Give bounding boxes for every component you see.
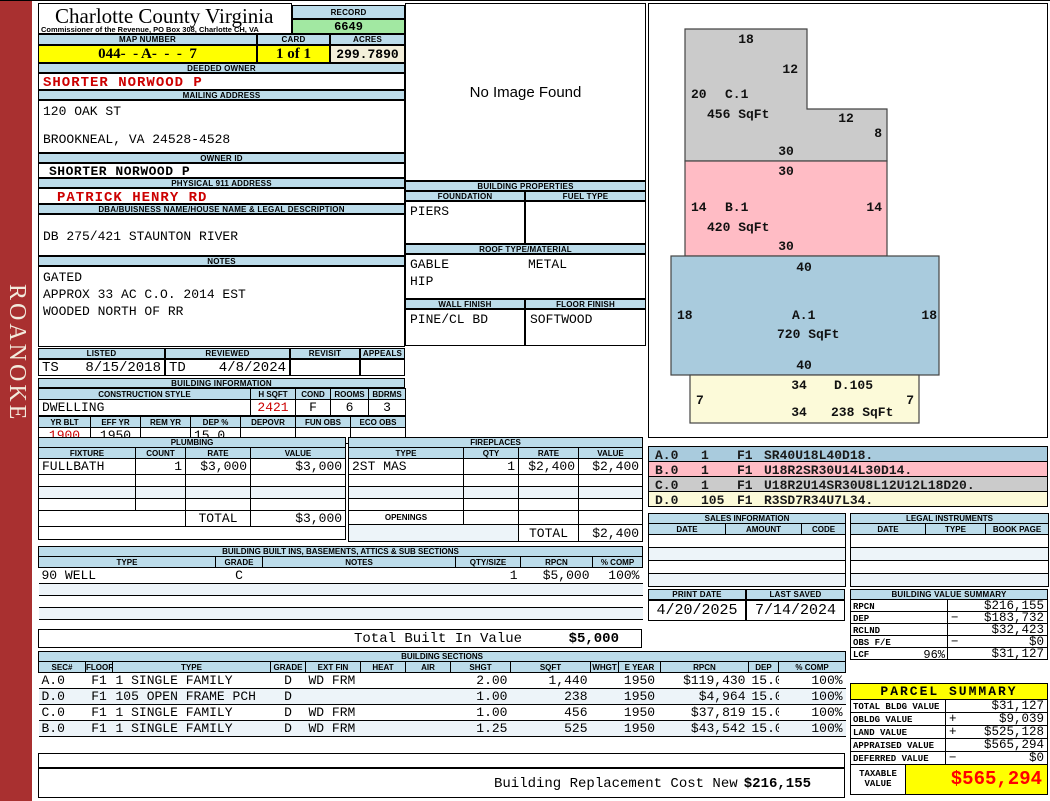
- sketch-section-c1: [685, 29, 887, 161]
- col-pct-comp: % COMP: [779, 662, 846, 673]
- built-ins-total-row: Total Built In Value $5,000: [38, 629, 642, 648]
- cell: $37,819: [661, 705, 749, 721]
- cell: D: [271, 721, 306, 737]
- acres-value: 299.7890: [330, 45, 405, 63]
- reviewed-value: TD 4/8/2024: [165, 359, 290, 376]
- fireplaces-openings-label: OPENINGS: [349, 511, 464, 525]
- cell: 1.00: [451, 705, 511, 721]
- dim-label: 12: [838, 111, 854, 126]
- cell: 100%: [779, 689, 846, 705]
- col-eff-yr: EFF YR: [91, 417, 141, 428]
- cell: 1.25: [451, 721, 511, 737]
- cell: [406, 673, 451, 689]
- vector-floor: F1: [737, 493, 753, 508]
- listed-value: TS 8/15/2018: [38, 359, 165, 376]
- map-number-value: 044- - A- - - 7: [38, 45, 257, 63]
- dim-label: 18: [677, 308, 693, 323]
- legal-description-box: DB 275/421 STAUNTON RIVER: [38, 214, 405, 256]
- county-header-box: Charlotte County Virginia Commissioner o…: [38, 3, 292, 34]
- cell: [591, 721, 619, 737]
- bvs-row-rclnd: RCLND $32,423: [850, 624, 1048, 636]
- col-sec: SEC#: [39, 662, 86, 673]
- dim-label: 40: [796, 260, 812, 275]
- district-band: ROANOKE: [0, 1, 32, 801]
- owner-id-box: SHORTER NORWOOD P: [38, 163, 405, 178]
- deeded-owner-box: SHORTER NORWOOD P: [38, 73, 405, 90]
- col-rem-yr: REM YR: [141, 417, 191, 428]
- sales-information-table: SALES INFORMATION DATE AMOUNT CODE: [648, 513, 846, 587]
- col-yr-blt: YR BLT: [39, 417, 91, 428]
- dim-label: 30: [778, 164, 794, 179]
- cell: 100%: [779, 721, 846, 737]
- built-in-type: 90 WELL: [39, 568, 216, 584]
- dim-label: 30: [778, 239, 794, 254]
- property-record-card: ROANOKE Charlotte County Virginia Commis…: [0, 0, 1050, 800]
- cell: WD FRM: [306, 673, 361, 689]
- roof-material: METAL: [528, 257, 567, 272]
- section-sqft: 720 SqFt: [777, 327, 839, 342]
- rooms-value: 6: [331, 400, 369, 416]
- legal-instruments-title: LEGAL INSTRUMENTS: [851, 514, 1049, 524]
- foundation-value-box: PIERS: [405, 201, 525, 244]
- record-value: 6649: [292, 19, 405, 34]
- no-image-text: No Image Found: [406, 84, 645, 101]
- foundation-label: FOUNDATION: [405, 191, 525, 201]
- section-name: D.105: [834, 378, 873, 393]
- cell: 15.0: [749, 721, 779, 737]
- vector-code-row-a: A.0 1 F1 SR40U18L40D18.: [648, 446, 1048, 462]
- building-sections-table: BUILDING SECTIONS SEC# FLOOR TYPE GRADE …: [38, 651, 846, 737]
- plumbing-title: PLUMBING: [39, 438, 346, 448]
- print-date-value: 4/20/2025: [648, 600, 746, 621]
- built-ins-total-label: Total Built In Value: [354, 631, 522, 647]
- plumbing-fixture: FULLBATH: [39, 459, 136, 475]
- col-sqft: SQFT: [511, 662, 591, 673]
- notes-box: GATED APPROX 33 AC C.O. 2014 EST WOODED …: [38, 266, 405, 347]
- cell: [406, 705, 451, 721]
- roof-label: ROOF TYPE/MATERIAL: [405, 244, 646, 254]
- cell: [361, 721, 406, 737]
- note-line: GATED: [43, 270, 82, 285]
- cell: 1 SINGLE FAMILY: [113, 705, 271, 721]
- cell: 15.0: [749, 705, 779, 721]
- vector-code: R3SD7R34U7L34.: [764, 493, 873, 508]
- dim-label: 14: [691, 200, 707, 215]
- sales-information-title: SALES INFORMATION: [649, 514, 846, 524]
- col-value: VALUE: [251, 448, 346, 459]
- dim-label: 40: [796, 358, 812, 373]
- cell: 1950: [619, 689, 661, 705]
- bdrms-value: 3: [369, 400, 406, 416]
- section-row-c0: C.0F11 SINGLE FAMILYDWD FRM1.004561950$3…: [39, 705, 846, 721]
- building-information-table: CONSTRUCTION STYLE H SQFT COND ROOMS BDR…: [38, 388, 406, 444]
- cell: WD FRM: [306, 705, 361, 721]
- bvs-lcf-pct: 96%: [923, 648, 945, 659]
- building-sketch: 18 12 20 C.1 456 SqFt 12 8 30 30 14 B.1 …: [648, 3, 1048, 438]
- district-name: ROANOKE: [3, 284, 30, 422]
- fireplaces-total-label: TOTAL: [519, 525, 579, 542]
- plumbing-table: PLUMBING FIXTURE COUNT RATE VALUE FULLBA…: [38, 437, 346, 540]
- cell: D: [271, 673, 306, 689]
- card-label: CARD: [257, 34, 330, 45]
- col-ext-fin: EXT FIN: [306, 662, 361, 673]
- ps-value: $565,294: [984, 738, 1044, 752]
- revisit-label: REVISIT: [290, 348, 360, 359]
- col-amount: AMOUNT: [726, 524, 802, 535]
- col-eyear: E YEAR: [619, 662, 661, 673]
- col-pct-comp: % COMP: [593, 557, 643, 568]
- col-h-sqft: H SQFT: [251, 389, 296, 400]
- section-row-a0: A.0F11 SINGLE FAMILYDWD FRM2.001,4401950…: [39, 673, 846, 689]
- owner-id-label: OWNER ID: [38, 153, 405, 163]
- wall-finish-box: PINE/CL BD: [405, 309, 525, 346]
- col-rpcn: RPCN: [661, 662, 749, 673]
- photo-panel: No Image Found: [405, 3, 646, 181]
- reviewed-by: TD: [169, 360, 186, 376]
- built-in-qty: 1: [456, 568, 521, 584]
- card-value: 1 of 1: [257, 45, 330, 63]
- col-heat: HEAT: [361, 662, 406, 673]
- taxable-label-text: TAXABLE VALUE: [859, 769, 897, 789]
- built-ins-table: BUILDING BUILT INS, BASEMENTS, ATTICS & …: [38, 546, 643, 620]
- ps-op: +: [949, 712, 957, 726]
- bvs-label: OBS F/E: [851, 636, 948, 647]
- plumbing-count: 1: [136, 459, 186, 475]
- fireplace-type: 2ST MAS: [349, 459, 464, 475]
- cell: 1950: [619, 721, 661, 737]
- fuel-type-value-box: [525, 201, 646, 244]
- physical-address-box: PATRICK HENRY RD: [38, 188, 405, 204]
- col-rooms: ROOMS: [331, 389, 369, 400]
- cell: $4,964: [661, 689, 749, 705]
- cell: 100%: [779, 705, 846, 721]
- replacement-cost-value: $216,155: [744, 776, 811, 792]
- parcel-summary: PARCEL SUMMARY TOTAL BLDG VALUE $31,127 …: [850, 683, 1048, 795]
- col-grade: GRADE: [271, 662, 306, 673]
- cell: 238: [511, 689, 591, 705]
- ps-row-deferred: DEFERRED VALUE −$0: [851, 752, 1047, 765]
- fireplace-value: $2,400: [579, 459, 643, 475]
- floor-finish-label: FLOOR FINISH: [525, 299, 646, 309]
- ps-label: DEFERRED VALUE: [851, 752, 946, 764]
- notes-label: NOTES: [38, 256, 405, 266]
- section-row-b0: B.0F11 SINGLE FAMILYDWD FRM1.255251950$4…: [39, 721, 846, 737]
- col-type: TYPE: [349, 448, 464, 459]
- col-floor: FLOOR: [86, 662, 113, 673]
- physical-address-label: PHYSICAL 911 ADDRESS: [38, 178, 405, 188]
- dba-label: DBA/BUISNESS NAME/HOUSE NAME & LEGAL DES…: [38, 204, 405, 214]
- fireplace-qty: 1: [464, 459, 519, 475]
- dim-label: 7: [906, 393, 914, 408]
- vector-sec: D.0: [655, 493, 678, 508]
- col-air: AIR: [406, 662, 451, 673]
- cond-value: F: [296, 400, 331, 416]
- construction-style-value: DWELLING: [39, 400, 251, 416]
- fireplace-rate: $2,400: [519, 459, 579, 475]
- deeded-owner-value: SHORTER NORWOOD P: [43, 75, 203, 91]
- cell: 1 SINGLE FAMILY: [113, 673, 271, 689]
- cell: F1: [86, 673, 113, 689]
- dim-label: 14: [866, 200, 882, 215]
- col-count: COUNT: [136, 448, 186, 459]
- reviewed-date: 4/8/2024: [219, 360, 286, 376]
- col-type: TYPE: [39, 557, 216, 568]
- map-number-label: MAP NUMBER: [38, 34, 257, 45]
- section-sqft: 238 SqFt: [831, 405, 893, 420]
- col-type: TYPE: [113, 662, 271, 673]
- plumbing-total-label: TOTAL: [186, 511, 251, 527]
- built-in-pct-comp: 100%: [593, 568, 643, 584]
- bvs-op: −: [951, 611, 959, 625]
- note-line: APPROX 33 AC C.O. 2014 EST: [43, 287, 246, 302]
- dim-label: 30: [778, 144, 794, 159]
- ps-label: OBLDG VALUE: [851, 713, 946, 725]
- col-code: CODE: [802, 524, 846, 535]
- wall-finish-value: PINE/CL BD: [410, 312, 488, 327]
- cell: 100%: [779, 673, 846, 689]
- col-shgt: SHGT: [451, 662, 511, 673]
- fuel-type-label: FUEL TYPE: [525, 191, 646, 201]
- taxable-value: $565,294: [906, 765, 1047, 794]
- col-notes: NOTES: [263, 557, 456, 568]
- ps-value: $525,128: [984, 725, 1044, 739]
- cell: [361, 689, 406, 705]
- last-saved-value: 7/14/2024: [746, 600, 845, 621]
- col-type: TYPE: [926, 524, 986, 535]
- cell: WD FRM: [306, 721, 361, 737]
- cell: [306, 689, 361, 705]
- parcel-summary-title: PARCEL SUMMARY: [851, 684, 1047, 700]
- cell: 456: [511, 705, 591, 721]
- cell: [361, 673, 406, 689]
- appeals-value: [360, 359, 405, 376]
- owner-id-value: SHORTER NORWOOD P: [49, 164, 190, 179]
- section-name: A.1: [792, 308, 816, 323]
- col-fixture: FIXTURE: [39, 448, 136, 459]
- ps-value: $9,039: [999, 712, 1044, 726]
- mailing-address-label: MAILING ADDRESS: [38, 90, 405, 100]
- cell: 15.0: [749, 673, 779, 689]
- fireplaces-total-value: $2,400: [579, 525, 643, 542]
- floor-finish-value: SOFTWOOD: [530, 312, 592, 327]
- col-grade: GRADE: [216, 557, 263, 568]
- dim-label: 8: [874, 126, 882, 141]
- cell: [406, 689, 451, 705]
- dim-label: 34: [791, 378, 807, 393]
- cell: [361, 705, 406, 721]
- building-value-summary: RPCN $216,155 DEP −$183,732 RCLND $32,42…: [850, 600, 1048, 660]
- dim-label: 18: [921, 308, 937, 323]
- ps-label: TOTAL BLDG VALUE: [851, 700, 946, 712]
- bvs-op: −: [951, 635, 959, 649]
- col-date: DATE: [851, 524, 926, 535]
- commissioner-line: Commissioner of the Revenue, PO Box 308,…: [41, 25, 259, 34]
- record-label: RECORD: [292, 5, 405, 19]
- bvs-label: RCLND: [851, 624, 948, 635]
- mailing-address-line2: BROOKNEAL, VA 24528-4528: [43, 132, 230, 147]
- legal-instruments-table: LEGAL INSTRUMENTS DATE TYPE BOOK PAGE: [850, 513, 1049, 587]
- dim-label: 18: [738, 32, 754, 47]
- cell: 105 OPEN FRAME PCH: [113, 689, 271, 705]
- last-saved-label: LAST SAVED: [746, 589, 845, 600]
- reviewed-label: REVIEWED: [165, 348, 290, 359]
- col-value: VALUE: [579, 448, 643, 459]
- built-in-grade: C: [216, 568, 263, 584]
- cell: 1 SINGLE FAMILY: [113, 721, 271, 737]
- ps-value: $31,127: [991, 699, 1044, 713]
- cell: 15.0: [749, 689, 779, 705]
- cell: [406, 721, 451, 737]
- cell: [591, 705, 619, 721]
- deeded-owner-label: DEEDED OWNER: [38, 63, 405, 73]
- bvs-lcf-label: LCF: [853, 650, 869, 659]
- fireplaces-title: FIREPLACES: [349, 438, 643, 448]
- section-sqft: 420 SqFt: [707, 220, 769, 235]
- col-cond: COND: [296, 389, 331, 400]
- bvs-row-lcf: LCF 96% $31,127: [850, 648, 1048, 660]
- col-bdrms: BDRMS: [369, 389, 406, 400]
- col-whgt: WHGT: [591, 662, 619, 673]
- ps-value: $0: [1029, 751, 1044, 765]
- built-ins-title: BUILDING BUILT INS, BASEMENTS, ATTICS & …: [39, 547, 643, 557]
- col-construction-style: CONSTRUCTION STYLE: [39, 389, 251, 400]
- built-in-rpcn: $5,000: [521, 568, 593, 584]
- cell: 525: [511, 721, 591, 737]
- col-dep-pct: DEP %: [191, 417, 241, 428]
- ps-op: +: [949, 725, 957, 739]
- mailing-address-box: 120 OAK ST BROOKNEAL, VA 24528-4528: [38, 100, 405, 153]
- col-rate: RATE: [186, 448, 251, 459]
- cell: $43,542: [661, 721, 749, 737]
- building-properties-title: BUILDING PROPERTIES: [405, 181, 646, 191]
- floor-finish-box: SOFTWOOD: [525, 309, 646, 346]
- col-qty-size: QTY/SIZE: [456, 557, 521, 568]
- cell: 1,440: [511, 673, 591, 689]
- print-date-label: PRINT DATE: [648, 589, 746, 600]
- appeals-label: APPEALS: [360, 348, 405, 359]
- cell: F1: [86, 721, 113, 737]
- listed-by: TS: [42, 360, 59, 376]
- cell: C.0: [39, 705, 86, 721]
- built-in-notes: [263, 568, 456, 584]
- bvs-label: LCF 96%: [851, 648, 948, 659]
- cell: [591, 673, 619, 689]
- ps-label: APPRAISED VALUE: [851, 739, 946, 751]
- cell: B.0: [39, 721, 86, 737]
- ps-op: −: [949, 751, 957, 765]
- acres-label: ACRES: [330, 34, 405, 45]
- wall-finish-label: WALL FINISH: [405, 299, 525, 309]
- ps-label: LAND VALUE: [851, 726, 946, 738]
- col-eco-obs: ECO OBS: [351, 417, 406, 428]
- dim-label: 7: [696, 393, 704, 408]
- plumbing-rate: $3,000: [186, 459, 251, 475]
- dim-label: 20: [691, 87, 707, 102]
- bvs-label: DEP: [851, 612, 948, 623]
- cell: 2.00: [451, 673, 511, 689]
- taxable-value-label: TAXABLE VALUE: [851, 765, 906, 794]
- bvs-value: $31,127: [991, 647, 1044, 661]
- dim-label: 34: [791, 405, 807, 420]
- roof-type-2: HIP: [410, 274, 433, 289]
- dim-label: 12: [782, 62, 798, 77]
- cell: F1: [86, 689, 113, 705]
- vector-num: 105: [701, 493, 724, 508]
- replacement-cost-label: Building Replacement Cost New: [494, 776, 738, 792]
- cell: F1: [86, 705, 113, 721]
- listed-date: 8/15/2018: [85, 360, 161, 376]
- plumbing-total-value: $3,000: [251, 511, 346, 527]
- cell: D.0: [39, 689, 86, 705]
- sketch-canvas: 18 12 20 C.1 456 SqFt 12 8 30 30 14 B.1 …: [649, 4, 1047, 437]
- cell: 1950: [619, 705, 661, 721]
- revisit-value: [290, 359, 360, 376]
- roof-type-1: GABLE: [410, 257, 449, 272]
- cell: D: [271, 689, 306, 705]
- col-rpcn: RPCN: [521, 557, 593, 568]
- vector-code-row-c: C.0 1 F1 U18R2U14SR30U8L12U12L18D20.: [648, 476, 1048, 492]
- col-qty: QTY: [464, 448, 519, 459]
- cell: [591, 689, 619, 705]
- cell: D: [271, 705, 306, 721]
- cell: 1950: [619, 673, 661, 689]
- cell: $119,430: [661, 673, 749, 689]
- vector-code-row-d: D.0 105 F1 R3SD7R34U7L34.: [648, 491, 1048, 507]
- built-ins-total-value: $5,000: [499, 631, 619, 647]
- section-row-d0: D.0F1105 OPEN FRAME PCHD1.002381950$4,96…: [39, 689, 846, 705]
- building-sections-title: BUILDING SECTIONS: [39, 652, 846, 662]
- col-depovr: DEPOVR: [241, 417, 296, 428]
- cell: 1.00: [451, 689, 511, 705]
- h-sqft-value: 2421: [251, 400, 296, 416]
- legal-description: DB 275/421 STAUNTON RIVER: [43, 229, 238, 244]
- fireplaces-table: FIREPLACES TYPE QTY RATE VALUE 2ST MAS 1…: [348, 437, 643, 542]
- spacer-row: [38, 753, 845, 768]
- note-line: WOODED NORTH OF RR: [43, 304, 183, 319]
- plumbing-value: $3,000: [251, 459, 346, 475]
- section-name: C.1: [725, 87, 749, 102]
- section-sqft: 456 SqFt: [707, 107, 769, 122]
- col-fun-obs: FUN OBS: [296, 417, 351, 428]
- ps-row-taxable: TAXABLE VALUE $565,294: [851, 765, 1047, 794]
- replacement-cost-row: Building Replacement Cost New $216,155: [38, 768, 845, 798]
- building-information-title: BUILDING INFORMATION: [38, 378, 405, 388]
- cell: A.0: [39, 673, 86, 689]
- section-name: B.1: [725, 200, 749, 215]
- vector-code-row-b: B.0 1 F1 U18R2SR30U14L30D14.: [648, 461, 1048, 477]
- roof-value-box: GABLE METAL HIP: [405, 254, 646, 299]
- col-rate: RATE: [519, 448, 579, 459]
- col-dep: DEP: [749, 662, 779, 673]
- col-date: DATE: [649, 524, 726, 535]
- col-book-page: BOOK PAGE: [986, 524, 1049, 535]
- mailing-address-line1: 120 OAK ST: [43, 104, 121, 119]
- listed-label: LISTED: [38, 348, 165, 359]
- foundation-value: PIERS: [410, 204, 449, 219]
- bvs-label: RPCN: [851, 600, 948, 611]
